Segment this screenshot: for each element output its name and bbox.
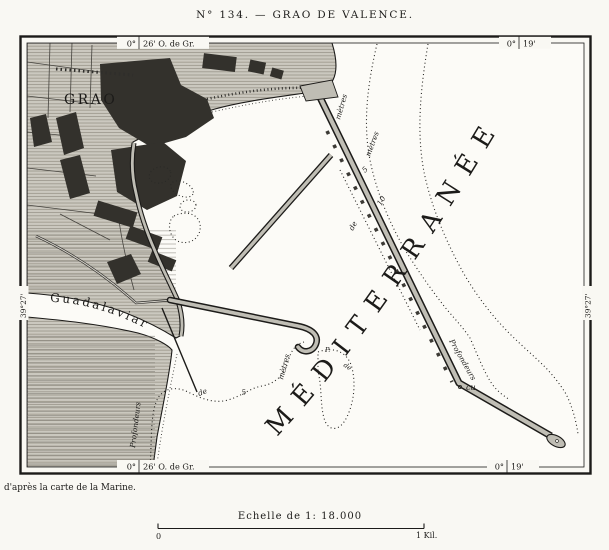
- coord-top-left-min: 26' O. de Gr.: [143, 39, 195, 49]
- coord-top-right-min: 19': [523, 39, 536, 49]
- scale-caption: Echelle de 1: 18.000: [238, 511, 362, 522]
- coord-bottom-left-deg: 0°: [127, 462, 136, 472]
- depth-label-cu: cu: [466, 383, 476, 392]
- coord-bottom-left-min: 26' O. de Gr.: [143, 462, 195, 472]
- coord-top-right-deg: 0°: [507, 39, 516, 49]
- scale-start-label: 0: [156, 532, 161, 541]
- depth-label-p-hook: P.: [324, 346, 330, 354]
- scale-end-label: 1 Kil.: [416, 531, 437, 540]
- map-interior: GRAO Guadalaviar MÉDITERRANÉE Profondeur…: [27, 43, 584, 468]
- town-label: GRAO: [64, 92, 117, 108]
- map-sheet: N° 134. — GRAO DE VALENCE.: [0, 0, 609, 550]
- coord-bottom-right-deg: 0°: [495, 462, 504, 472]
- credit-note: d'après la carte de la Marine.: [4, 482, 136, 493]
- coord-top-left-deg: 0°: [127, 39, 136, 49]
- coord-right-lat: 39°27': [584, 293, 593, 318]
- map-canvas: N° 134. — GRAO DE VALENCE.: [0, 0, 609, 550]
- breakwater-light: [556, 440, 559, 443]
- sheet-title: N° 134. — GRAO DE VALENCE.: [196, 9, 414, 21]
- coord-left-lat: 39°27': [19, 293, 28, 318]
- coord-bottom-right-min: 19': [511, 462, 524, 472]
